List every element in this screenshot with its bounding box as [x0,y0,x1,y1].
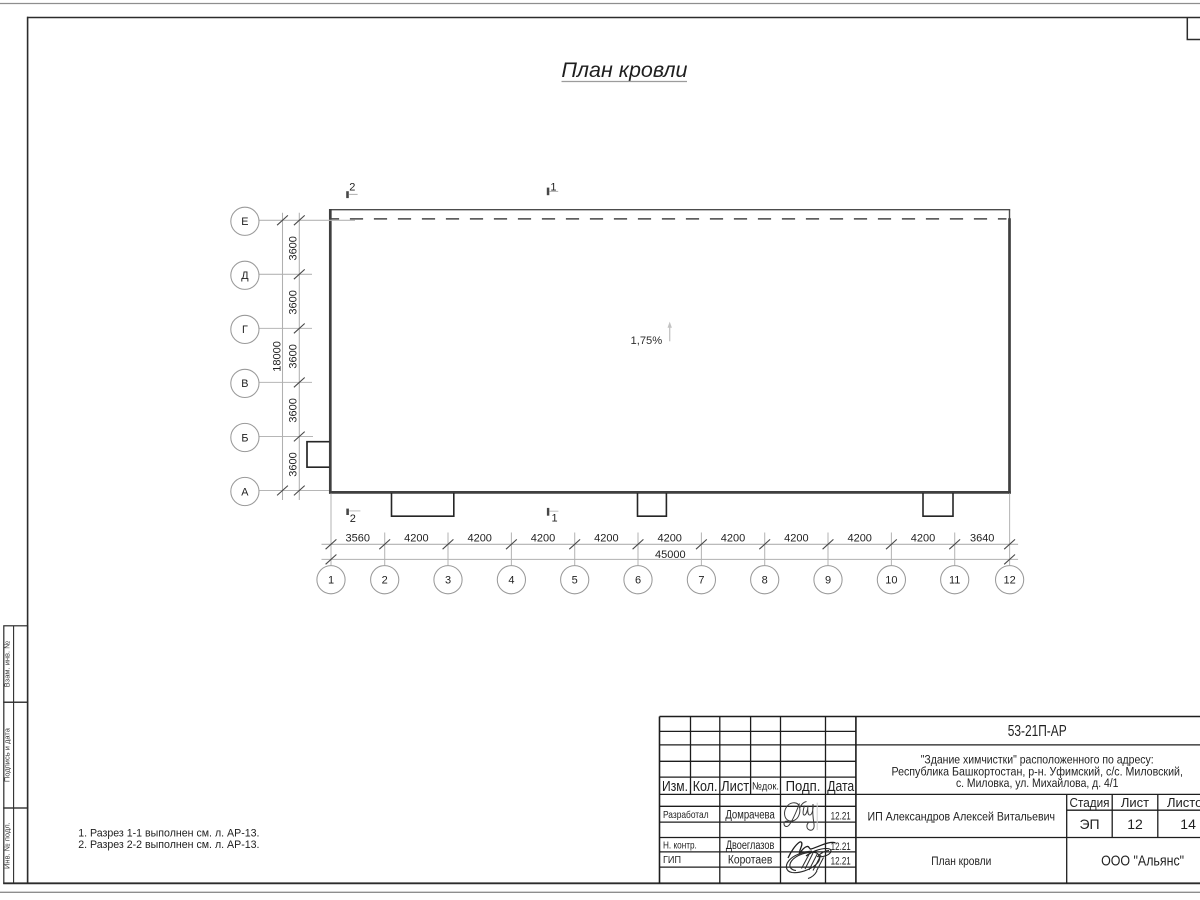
svg-text:ООО "Альянс": ООО "Альянс" [1101,852,1184,869]
svg-text:3600: 3600 [287,452,299,476]
svg-text:1,75%: 1,75% [631,335,663,347]
svg-text:В: В [241,378,248,390]
svg-text:Н. контр.: Н. контр. [663,840,697,851]
svg-text:Изм.: Изм. [662,779,688,795]
svg-text:4200: 4200 [531,533,555,545]
svg-text:2: 2 [350,513,356,525]
svg-text:Е: Е [241,216,248,228]
svg-text:3640: 3640 [970,533,994,545]
svg-text:Стадия: Стадия [1070,795,1110,810]
svg-text:План кровли: План кровли [931,854,991,868]
svg-text:Взам. инв. №: Взам. инв. № [3,641,12,687]
svg-text:12: 12 [1003,575,1015,587]
svg-text:Двоеглазов: Двоеглазов [726,840,774,852]
svg-text:2: 2 [349,181,355,193]
svg-text:Лист: Лист [1121,795,1149,810]
svg-text:12: 12 [1127,816,1143,832]
svg-text:4: 4 [508,575,514,587]
svg-text:4200: 4200 [467,533,491,545]
svg-text:18000: 18000 [272,341,284,372]
svg-text:3600: 3600 [287,344,299,368]
svg-text:7: 7 [698,575,704,587]
svg-text:Кол.: Кол. [693,779,718,795]
svg-text:Г: Г [242,324,248,336]
svg-text:4200: 4200 [404,533,428,545]
svg-text:Лист: Лист [721,779,749,795]
svg-text:3560: 3560 [346,533,370,545]
svg-text:12.21: 12.21 [831,811,851,823]
svg-text:3600: 3600 [287,236,299,260]
svg-text:1. Разрез 1-1 выполнен см. л.: 1. Разрез 1-1 выполнен см. л. АР-13. [78,827,259,839]
svg-text:4200: 4200 [911,533,935,545]
svg-text:45000: 45000 [655,549,686,561]
svg-text:Листов: Листов [1167,795,1200,810]
svg-text:Домрачева: Домрачева [725,809,775,821]
svg-text:Коротаев: Коротаев [728,855,773,867]
svg-text:1: 1 [328,575,334,587]
svg-text:4200: 4200 [594,533,618,545]
svg-text:4200: 4200 [721,533,745,545]
svg-text:14: 14 [1180,816,1196,832]
svg-text:А: А [241,486,249,498]
svg-text:1: 1 [552,513,558,525]
svg-text:2. Разрез 2-2 выполнен см. л.: 2. Разрез 2-2 выполнен см. л. АР-13. [78,839,259,851]
svg-text:Подпись и дата: Подпись и дата [3,727,12,782]
svg-text:8: 8 [762,575,768,587]
svg-text:1: 1 [550,182,556,194]
svg-text:ИП Александров Алексей Виталье: ИП Александров Алексей Витальевич [868,810,1056,824]
svg-text:3: 3 [445,575,451,587]
svg-text:12.21: 12.21 [831,856,851,868]
svg-text:9: 9 [825,575,831,587]
svg-text:4200: 4200 [847,533,871,545]
svg-text:5: 5 [572,575,578,587]
svg-text:Инв. № подл.: Инв. № подл. [3,822,12,869]
svg-text:4200: 4200 [657,533,681,545]
svg-text:Д: Д [241,270,249,282]
svg-text:2: 2 [382,575,388,587]
svg-text:ЭП: ЭП [1079,816,1099,832]
svg-text:Дата: Дата [827,779,855,795]
svg-text:3600: 3600 [287,290,299,314]
svg-text:№док.: №док. [752,781,779,793]
svg-text:Б: Б [241,432,248,444]
svg-text:План кровли: План кровли [561,58,687,82]
svg-text:Подп.: Подп. [786,779,821,795]
svg-text:4200: 4200 [784,533,808,545]
svg-text:6: 6 [635,575,641,587]
svg-text:с. Миловка, ул. Михайлова, д.: с. Миловка, ул. Михайлова, д. 4/1 [956,776,1119,790]
svg-text:53-21П-АР: 53-21П-АР [1008,723,1067,740]
svg-text:10: 10 [885,575,897,587]
svg-text:3600: 3600 [287,398,299,422]
svg-text:11: 11 [949,575,960,587]
svg-text:Разработал: Разработал [663,809,709,821]
svg-text:ГИП: ГИП [663,855,681,866]
